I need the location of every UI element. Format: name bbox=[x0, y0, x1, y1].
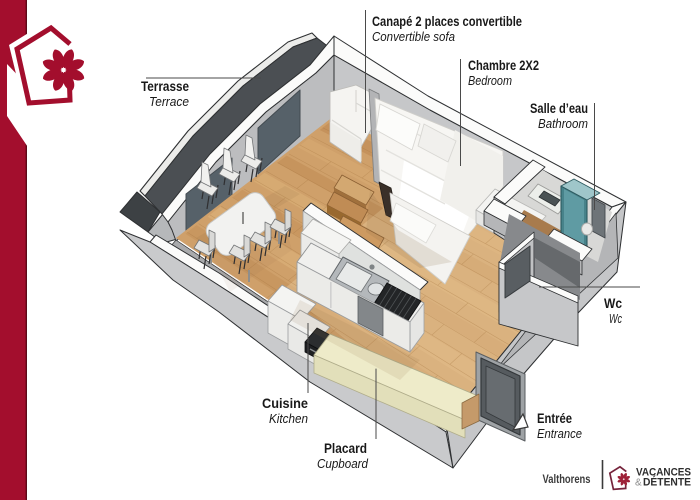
svg-text:Bathroom: Bathroom bbox=[538, 116, 588, 131]
svg-text:Terrace: Terrace bbox=[149, 94, 189, 109]
svg-text:Placard: Placard bbox=[324, 441, 367, 456]
svg-text:Convertible sofa: Convertible sofa bbox=[372, 29, 455, 44]
svg-text:Terrasse: Terrasse bbox=[141, 79, 189, 94]
svg-text:Kitchen: Kitchen bbox=[269, 411, 308, 426]
svg-text:Cupboard: Cupboard bbox=[317, 456, 369, 471]
svg-text:Entrance: Entrance bbox=[537, 426, 582, 441]
svg-text:&: & bbox=[635, 478, 642, 489]
svg-text:Chambre 2X2: Chambre 2X2 bbox=[468, 58, 539, 73]
svg-text:Cuisine: Cuisine bbox=[262, 396, 308, 411]
svg-text:Wc: Wc bbox=[604, 296, 622, 311]
svg-text:DÉTENTE: DÉTENTE bbox=[643, 476, 691, 489]
svg-text:Valthorens: Valthorens bbox=[543, 472, 591, 486]
svg-text:Bedroom: Bedroom bbox=[468, 73, 512, 88]
svg-text:Canapé 2 places convertible: Canapé 2 places convertible bbox=[372, 14, 522, 29]
svg-text:Wc: Wc bbox=[609, 311, 622, 326]
svg-text:Salle d’eau: Salle d’eau bbox=[530, 101, 588, 116]
svg-text:Entrée: Entrée bbox=[537, 411, 572, 426]
